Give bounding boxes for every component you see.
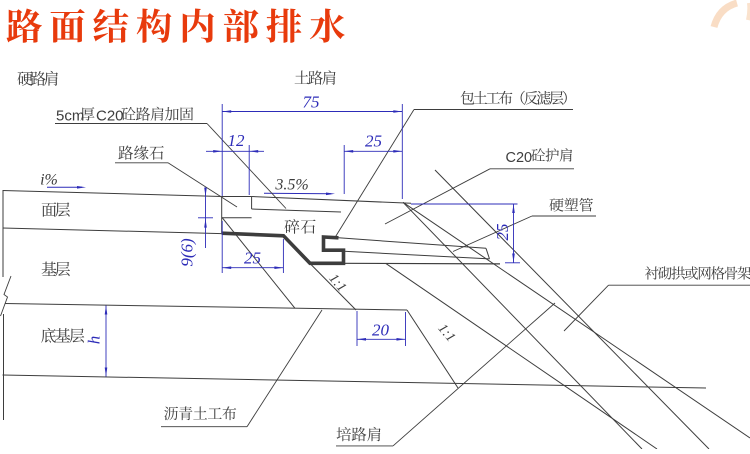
- svg-text:h: h: [85, 336, 104, 345]
- svg-text:25: 25: [493, 224, 512, 241]
- svg-text:12: 12: [228, 131, 246, 150]
- svg-text:25: 25: [244, 249, 261, 268]
- svg-text:9(6): 9(6): [178, 238, 197, 267]
- svg-text:20: 20: [372, 321, 390, 340]
- svg-text:i%: i%: [40, 172, 58, 189]
- svg-text:C20: C20: [506, 150, 533, 166]
- svg-text:25: 25: [365, 132, 382, 151]
- svg-text:75: 75: [303, 93, 320, 112]
- svg-text:5cm: 5cm: [56, 108, 84, 125]
- svg-text:3.5%: 3.5%: [274, 177, 308, 194]
- svg-text:C20: C20: [96, 108, 124, 125]
